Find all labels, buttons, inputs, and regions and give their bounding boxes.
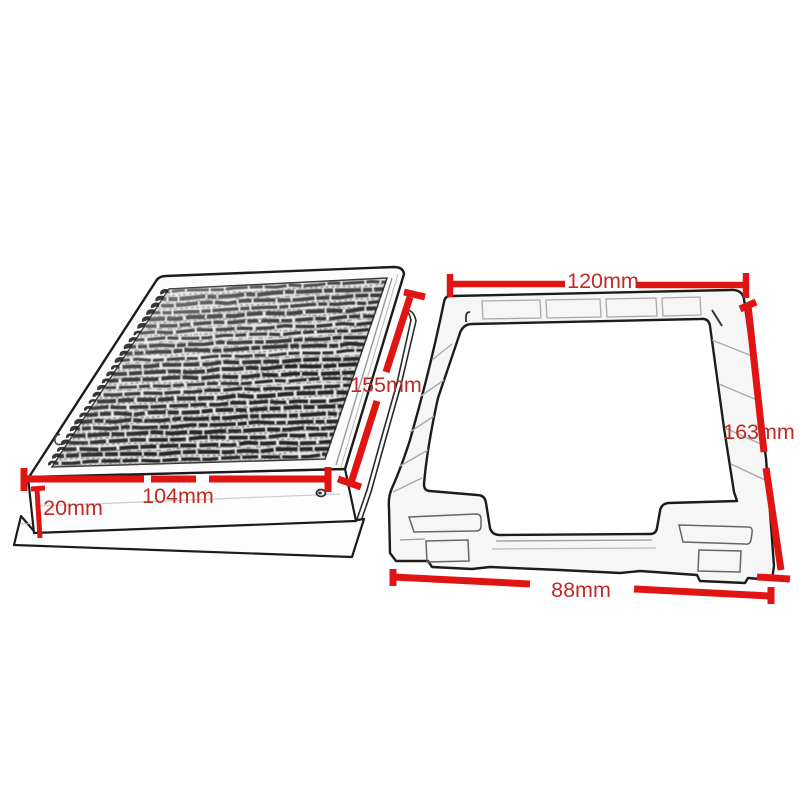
svg-text:155mm: 155mm xyxy=(350,373,422,397)
svg-text:120mm: 120mm xyxy=(567,269,639,293)
svg-text:20mm: 20mm xyxy=(43,496,103,520)
svg-text:163mm: 163mm xyxy=(723,420,795,444)
svg-text:88mm: 88mm xyxy=(551,578,611,602)
svg-text:104mm: 104mm xyxy=(142,484,214,508)
